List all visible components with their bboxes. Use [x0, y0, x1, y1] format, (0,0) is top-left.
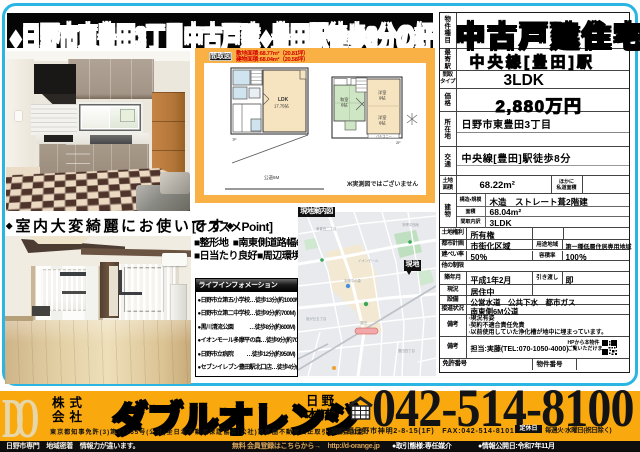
- svg-text:公道6M: 公道6M: [264, 174, 280, 181]
- svg-text:17.75帖: 17.75帖: [274, 103, 289, 110]
- svg-text:多摩平の森: 多摩平の森: [344, 278, 362, 283]
- svg-text:1F: 1F: [232, 137, 237, 142]
- svg-text:LDK: LDK: [278, 97, 289, 103]
- svg-text:多摩平団地: 多摩平団地: [402, 222, 420, 227]
- svg-text:Ж実測図ではございません: Ж実測図ではございません: [346, 180, 418, 188]
- svg-text:イオンモール: イオンモール: [358, 258, 379, 263]
- svg-text:6帖: 6帖: [379, 120, 386, 127]
- svg-text:6帖: 6帖: [341, 102, 348, 109]
- svg-text:バルコニー: バルコニー: [376, 135, 392, 139]
- svg-text:豊田四丁目: 豊田四丁目: [398, 348, 415, 353]
- svg-text:9帖: 9帖: [379, 95, 386, 102]
- svg-text:東豊田二丁目: 東豊田二丁目: [316, 226, 336, 231]
- svg-text:豊田: 豊田: [360, 320, 367, 325]
- svg-text:2F: 2F: [396, 140, 401, 145]
- svg-text:旭が丘五丁目: 旭が丘五丁目: [306, 316, 326, 321]
